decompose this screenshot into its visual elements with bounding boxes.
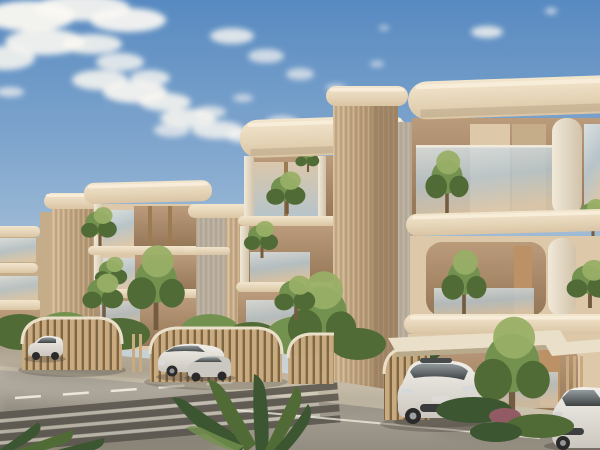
- architectural-rendering: [0, 0, 600, 450]
- screenshot-canvas: [0, 0, 600, 450]
- warm-light-overlay: [0, 0, 600, 450]
